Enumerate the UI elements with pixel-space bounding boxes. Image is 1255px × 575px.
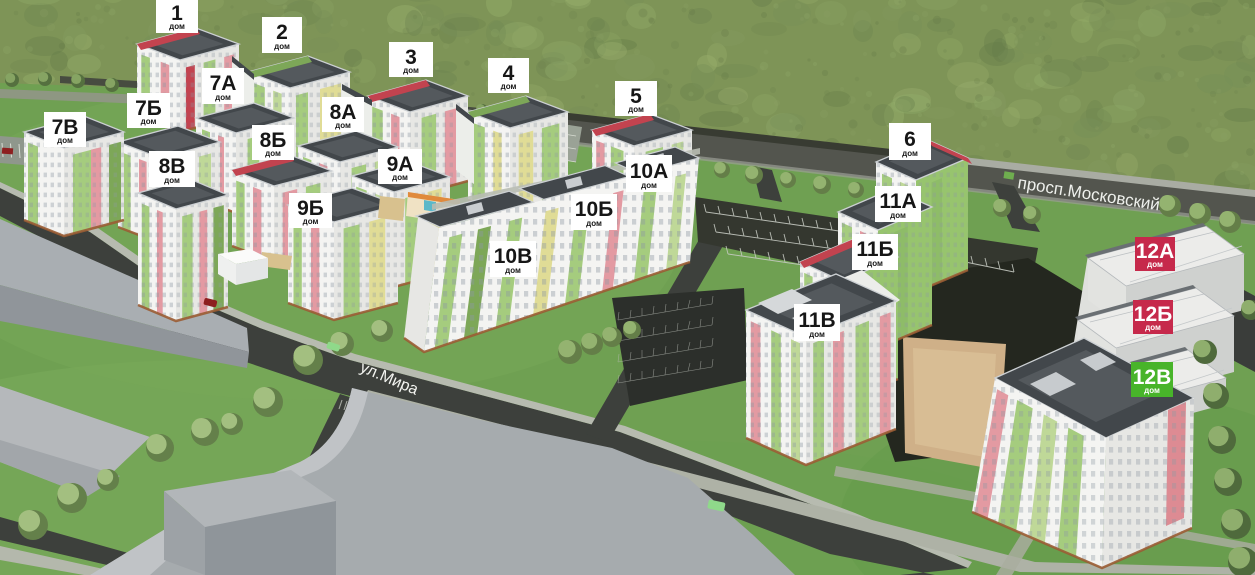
svg-text:дом: дом xyxy=(1145,323,1161,332)
svg-text:10Б: 10Б xyxy=(575,198,613,221)
svg-text:дом: дом xyxy=(403,66,419,75)
svg-text:дом: дом xyxy=(505,266,521,275)
svg-text:11А: 11А xyxy=(879,190,916,213)
svg-text:дом: дом xyxy=(274,42,290,51)
svg-text:10А: 10А xyxy=(630,160,669,183)
svg-text:дом: дом xyxy=(1144,386,1160,395)
svg-text:дом: дом xyxy=(57,136,73,145)
svg-text:дом: дом xyxy=(169,22,185,31)
svg-text:8В: 8В xyxy=(159,155,186,178)
svg-text:дом: дом xyxy=(303,217,319,226)
svg-text:11Б: 11Б xyxy=(856,238,893,261)
svg-text:дом: дом xyxy=(628,105,644,114)
svg-text:6: 6 xyxy=(904,128,916,151)
svg-text:7А: 7А xyxy=(210,72,237,95)
svg-text:2: 2 xyxy=(276,21,288,44)
svg-text:дом: дом xyxy=(902,149,918,158)
svg-text:дом: дом xyxy=(867,259,883,268)
svg-text:дом: дом xyxy=(335,121,351,130)
svg-text:11В: 11В xyxy=(798,309,835,332)
svg-text:дом: дом xyxy=(215,93,231,102)
svg-text:дом: дом xyxy=(809,330,825,339)
svg-text:дом: дом xyxy=(265,149,281,158)
svg-text:дом: дом xyxy=(392,173,408,182)
svg-text:10В: 10В xyxy=(494,245,533,268)
svg-text:дом: дом xyxy=(586,219,602,228)
svg-text:дом: дом xyxy=(641,181,657,190)
svg-text:дом: дом xyxy=(141,117,157,126)
svg-text:дом: дом xyxy=(890,211,906,220)
svg-text:дом: дом xyxy=(501,82,517,91)
svg-text:дом: дом xyxy=(164,176,180,185)
svg-text:дом: дом xyxy=(1147,260,1163,269)
